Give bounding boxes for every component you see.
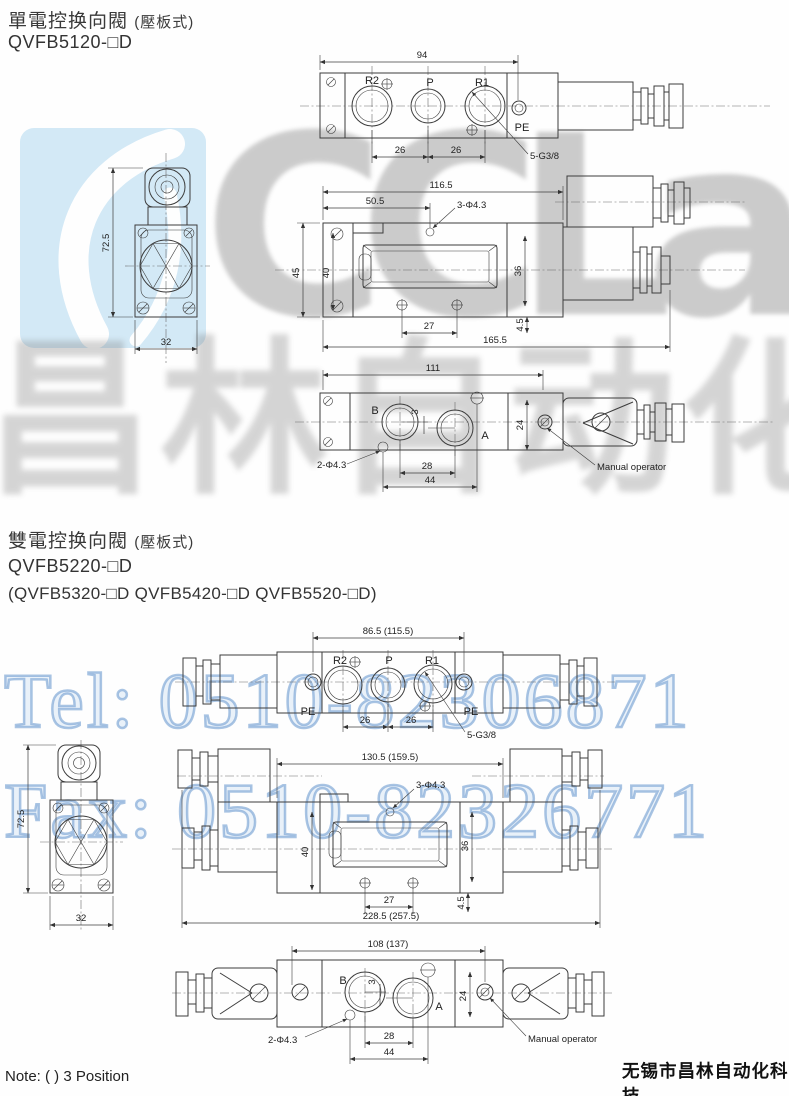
svg-text:24: 24	[458, 991, 469, 1002]
s2-bottom-left-solenoid	[176, 968, 277, 1019]
s2-port-r2-label: R2	[333, 655, 347, 667]
s1-dim-94: 94	[320, 50, 518, 100]
s2-bottom-valve-body	[277, 960, 503, 1027]
svg-text:28: 28	[422, 461, 433, 472]
section2-title-text: 雙電控换向閥	[8, 531, 128, 552]
s2-dim-44: 44	[350, 977, 428, 1064]
svg-text:86.5 (115.5): 86.5 (115.5)	[363, 626, 414, 637]
svg-text:94: 94	[417, 50, 428, 61]
s1-dim-28: 28	[400, 440, 455, 478]
s1-side-view-drawing: 116.5 50.5 3-Φ4.3 45 40 36 27	[275, 170, 789, 370]
s1-dim-111: 111	[323, 363, 543, 390]
svg-text:72.5: 72.5	[101, 234, 112, 253]
s2-dim-3: 3	[365, 979, 413, 1006]
s2-top-right-solenoid	[503, 655, 597, 708]
s1-port-b-label: B	[371, 405, 378, 417]
svg-text:45: 45	[291, 268, 302, 279]
svg-text:36: 36	[513, 266, 524, 277]
svg-text:28: 28	[384, 1031, 395, 1042]
svg-text:26: 26	[395, 145, 406, 156]
s2-port-b-label: B	[339, 975, 346, 987]
s2-dim-width: 108 (137)	[292, 939, 485, 985]
svg-text:40: 40	[321, 268, 332, 279]
s2-port-a-label: A	[435, 1001, 443, 1013]
s1-port-r1-label: R1	[475, 77, 489, 89]
s2-bottom-view-drawing: B A 108 (137) 3 24 2-Φ4.3 Manual operato…	[172, 940, 789, 1070]
section1-title-note: (壓板式)	[134, 14, 194, 31]
svg-text:130.5 (159.5): 130.5 (159.5)	[362, 752, 419, 763]
s1-end-view-drawing: 72.5 32	[85, 148, 240, 373]
s2-port-p-label: P	[385, 655, 392, 667]
svg-text:40: 40	[300, 847, 311, 858]
svg-text:Manual operator: Manual operator	[528, 1034, 597, 1045]
svg-text:24: 24	[515, 420, 526, 431]
s1-holes-callout: 2-Φ4.3	[317, 451, 380, 471]
s1-top-view-drawing: R2 P R1 PE 94 26 26 5-G3/8	[300, 42, 789, 180]
svg-text:44: 44	[425, 475, 436, 486]
svg-text:165.5: 165.5	[483, 335, 507, 346]
svg-text:111: 111	[426, 363, 440, 374]
svg-text:26: 26	[406, 715, 417, 726]
section1-title: 單電控换向閥 (壓板式)	[8, 6, 194, 33]
s2-side-view-drawing: 130.5 (159.5) 3-Φ4.3 40 36 27 4.5 228.5 …	[172, 742, 789, 937]
section2-model: QVFB5220-□D	[8, 556, 132, 577]
s2-side-right-solenoid	[503, 749, 602, 872]
s2-dim-36: 36	[460, 812, 472, 882]
svg-text:Manual operator: Manual operator	[597, 462, 666, 473]
svg-text:2-Φ4.3: 2-Φ4.3	[268, 1035, 297, 1046]
s1-side-solenoid	[563, 227, 670, 300]
s2-port-r1-label: R1	[425, 655, 439, 667]
s1-dim-36: 36	[513, 236, 525, 306]
s2-dim-28: 28	[365, 1012, 413, 1048]
s1-dim-72-5: 72.5	[101, 168, 143, 317]
s2-side-left-solenoid	[178, 749, 277, 872]
section2-title: 雙電控换向閥 (壓板式)	[8, 526, 194, 553]
svg-text:4.5: 4.5	[456, 896, 467, 909]
svg-text:3: 3	[410, 409, 421, 414]
svg-text:5-G3/8: 5-G3/8	[467, 730, 496, 741]
svg-text:228.5 (257.5): 228.5 (257.5)	[363, 911, 420, 922]
s1-dim-4-5: 4.5	[515, 317, 527, 333]
s2-dim-26-26: 26 26	[343, 704, 433, 732]
s2-top-view-drawing: PE R2 P R1 PE 86.5 (115.5) 26 26 5-G3/8	[175, 622, 789, 747]
s1-port-p-label: P	[426, 77, 433, 89]
svg-text:27: 27	[424, 321, 435, 332]
datasheet-page: CCLair 昌林自动化 Tel: 0510-82306871 Fax: 051…	[0, 0, 789, 1096]
section2-title-note: (壓板式)	[134, 534, 194, 551]
s1-port-pe-label: PE	[515, 122, 530, 134]
s2-thread-callout: 5-G3/8	[425, 672, 496, 741]
svg-text:32: 32	[76, 913, 87, 924]
s1-side-din-connector	[567, 176, 690, 227]
svg-text:5-G3/8: 5-G3/8	[530, 151, 559, 162]
s2-dim-width: 130.5 (159.5)	[277, 752, 503, 798]
s1-manual-callout: Manual operator	[547, 428, 666, 473]
s2-manual-callout: Manual operator	[490, 998, 597, 1045]
svg-text:3-Φ4.3: 3-Φ4.3	[416, 780, 445, 791]
s2-port-pe-right-label: PE	[464, 706, 479, 718]
s2-holes-callout: 3-Φ4.3	[386, 780, 445, 816]
s1-holes-callout: 3-Φ4.3	[426, 200, 486, 236]
footer-company-name: 无锡市昌林自动化科技	[622, 1058, 789, 1096]
s1-dim-3: 3	[400, 409, 455, 434]
s1-port-a-label: A	[481, 430, 489, 442]
svg-text:50.5: 50.5	[366, 196, 385, 207]
svg-text:44: 44	[384, 1047, 395, 1058]
s1-dim-27: 27	[402, 310, 457, 338]
svg-text:4.5: 4.5	[515, 318, 526, 331]
s2-end-view-drawing: 72.5 32	[18, 738, 143, 938]
section2-models-alt: (QVFB5320-□D QVFB5420-□D QVFB5520-□D)	[8, 584, 377, 604]
footer-note: Note: ( ) 3 Position	[5, 1068, 129, 1085]
svg-text:26: 26	[360, 715, 371, 726]
s2-dim-40: 40	[300, 812, 312, 890]
s1-dim-24: 24	[515, 400, 527, 450]
svg-text:2-Φ4.3: 2-Φ4.3	[317, 460, 346, 471]
s2-dim-4-5: 4.5	[456, 893, 468, 912]
s2-port-pe-left-label: PE	[301, 706, 316, 718]
section1-model: QVFB5120-□D	[8, 32, 132, 53]
svg-text:27: 27	[384, 895, 395, 906]
s1-dim-44: 44	[383, 404, 477, 492]
s2-dim-32: 32	[50, 896, 113, 930]
svg-text:26: 26	[451, 145, 462, 156]
svg-text:108 (137): 108 (137)	[368, 939, 409, 950]
svg-text:3: 3	[367, 979, 378, 984]
s1-dim-26-26: 26 26	[372, 126, 485, 163]
s2-top-left-solenoid	[183, 655, 277, 708]
svg-text:116.5: 116.5	[429, 180, 452, 191]
s2-bottom-right-solenoid	[503, 968, 604, 1019]
svg-text:3-Φ4.3: 3-Φ4.3	[457, 200, 486, 211]
svg-text:36: 36	[460, 841, 471, 852]
s1-dim-165-5: 165.5	[323, 290, 670, 352]
s2-dim-24: 24	[458, 972, 470, 1017]
s1-dim-116-5: 116.5	[323, 180, 563, 220]
s2-end-body	[50, 745, 113, 893]
section1-title-text: 單電控换向閥	[8, 11, 128, 32]
s1-bottom-view-drawing: B A 111 3 24 2-Φ4.3 Manual operator 28	[295, 358, 789, 508]
s1-port-r2-label: R2	[365, 75, 379, 87]
s2-holes-callout: 2-Φ4.3	[268, 1019, 347, 1046]
svg-text:32: 32	[161, 337, 172, 348]
svg-text:72.5: 72.5	[16, 810, 27, 829]
